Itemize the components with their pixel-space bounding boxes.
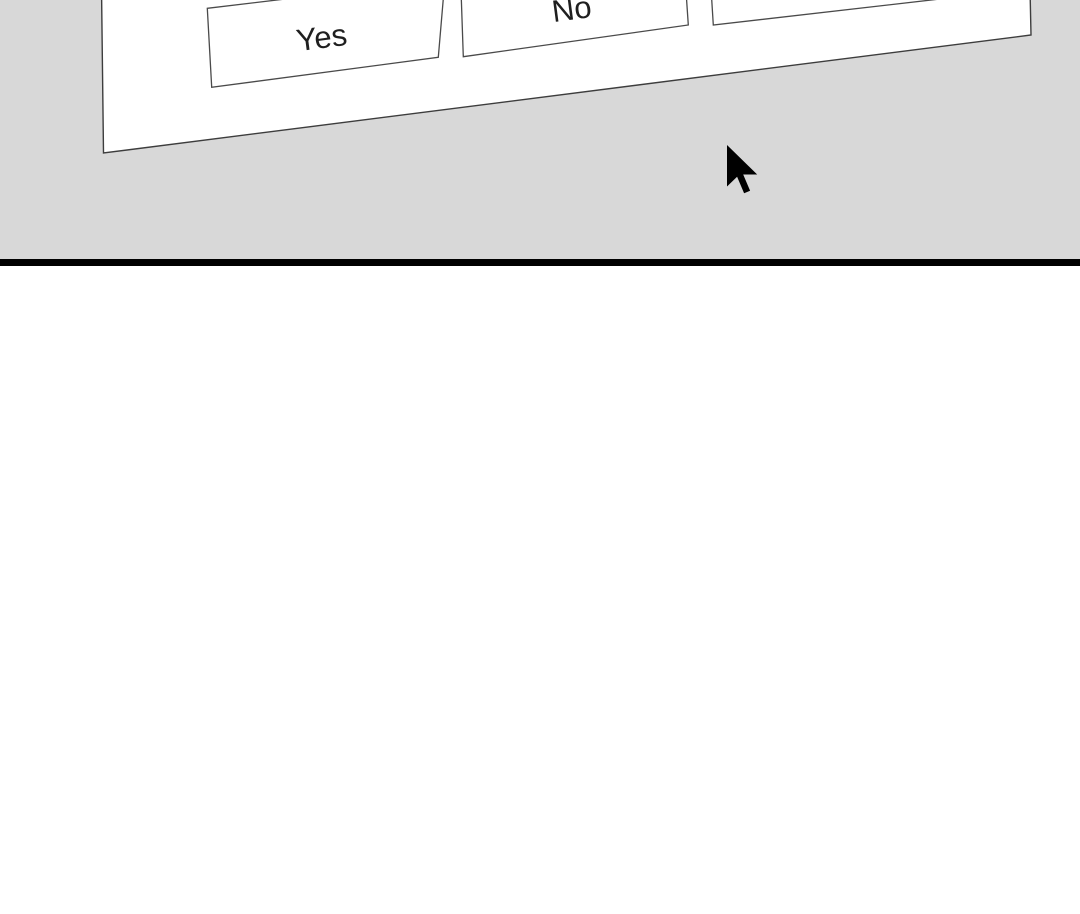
section-divider [0,259,1080,266]
slide-canvas: Yes No [0,0,1080,259]
screen: Yes No [0,0,1080,914]
slide-area: Yes No [0,0,1080,259]
no-button-label[interactable]: No [550,0,594,29]
yes-button-label[interactable]: Yes [294,17,349,58]
blank-content-area [0,266,1080,914]
